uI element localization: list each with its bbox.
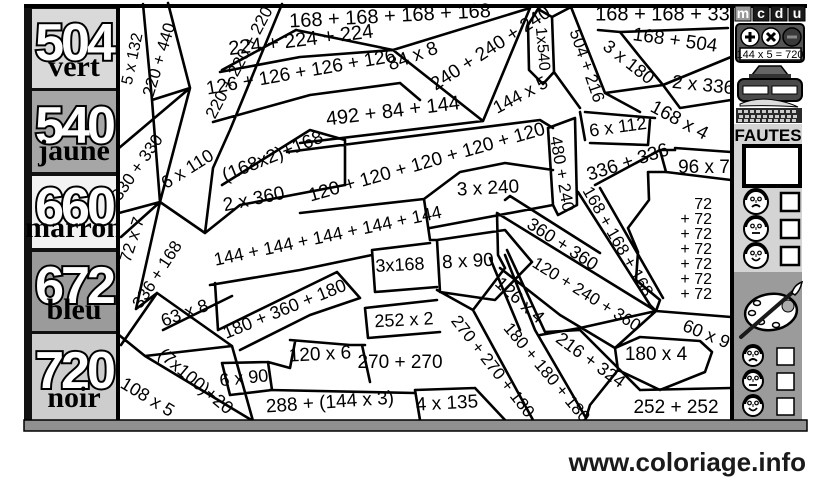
- svg-text:270 + 270: 270 + 270: [357, 352, 442, 373]
- svg-text:d: d: [775, 5, 784, 21]
- svg-text:c: c: [757, 5, 765, 21]
- svg-text:180 x 4: 180 x 4: [625, 344, 688, 365]
- svg-text:3x168: 3x168: [375, 253, 425, 276]
- svg-text:noir: noir: [47, 381, 100, 414]
- svg-text:4 x 135: 4 x 135: [415, 391, 478, 415]
- svg-text:120 x 6: 120 x 6: [288, 342, 351, 366]
- svg-text:jaune: jaune: [37, 134, 110, 167]
- svg-text:marron: marron: [25, 211, 123, 244]
- svg-text:FAUTES: FAUTES: [734, 126, 801, 145]
- svg-text:96 x 7: 96 x 7: [678, 157, 730, 178]
- svg-text:252 + 252: 252 + 252: [633, 397, 718, 418]
- svg-text:u: u: [793, 5, 802, 21]
- svg-text:vert: vert: [48, 50, 100, 83]
- svg-text:144 x 5 = 720: 144 x 5 = 720: [737, 49, 804, 61]
- svg-text:m: m: [737, 5, 749, 21]
- svg-text:+ 72: + 72: [680, 286, 712, 303]
- svg-text:8 x 90: 8 x 90: [442, 250, 495, 274]
- svg-text:bleu: bleu: [46, 293, 101, 326]
- svg-text:252 x 2: 252 x 2: [374, 308, 434, 331]
- svg-text:www.coloriage.info: www.coloriage.info: [568, 447, 806, 477]
- svg-text:3 x 240: 3 x 240: [456, 176, 519, 200]
